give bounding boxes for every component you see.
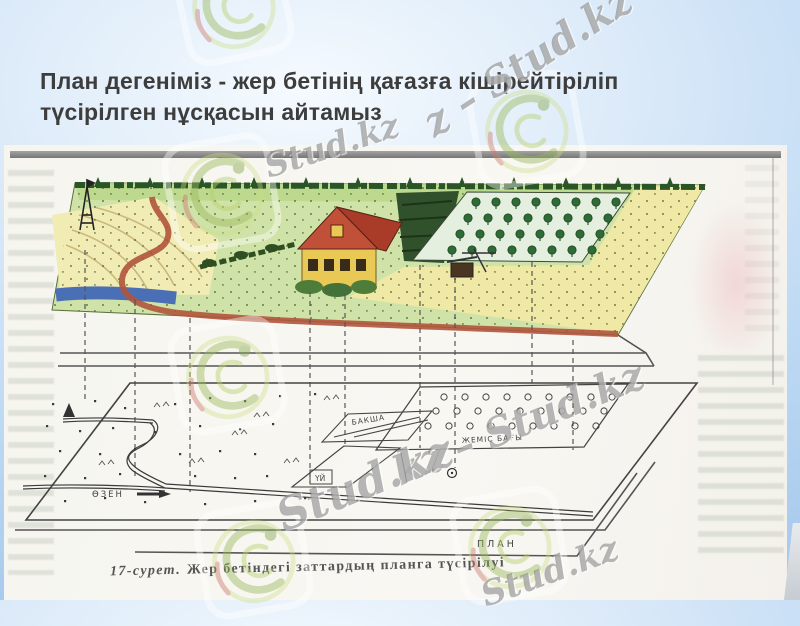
horizon-forest — [75, 177, 705, 187]
plan-house-symbol: ҮЙ — [292, 446, 400, 487]
page-title: План дегеніміз - жер бетінің қағазға кіш… — [40, 66, 770, 128]
sheet-edges — [15, 335, 655, 556]
river — [56, 293, 176, 298]
title-line-1: План дегеніміз - жер бетінің қағазға кіш… — [40, 66, 770, 97]
garden-label-text: БАКША — [351, 413, 386, 427]
plan-garden-symbol: БАКША — [322, 411, 432, 442]
plan-orchard-symbol: ЖЕМІС БАҒЫ — [376, 384, 628, 450]
plan-drawing: ӨЗЕН БАКША ҮЙ ЖЕМІС БАҒЫ — [23, 383, 697, 550]
plan-label-text: ПЛАН — [477, 539, 517, 550]
terrain-and-plan-drawing: ӨЗЕН БАКША ҮЙ ЖЕМІС БАҒЫ — [4, 145, 787, 600]
plan-outline — [26, 383, 697, 520]
orchard-label-text: ЖЕМІС БАҒЫ — [462, 433, 523, 445]
stud-kz-logo-watermark — [165, 0, 301, 74]
river-label-text: ӨЗЕН — [92, 490, 124, 500]
plan-river-label: ӨЗЕН — [92, 490, 171, 500]
landscape-scene — [52, 177, 705, 335]
figure-image: ӨЗЕН БАКША ҮЙ ЖЕМІС БАҒЫ — [4, 145, 787, 600]
slide: { "slide": { "title_line1": "План дегені… — [0, 0, 800, 600]
figure-number: 17-сурет. — [110, 563, 181, 580]
house-label-text: ҮЙ — [314, 474, 325, 483]
plan-triangle-symbol — [63, 403, 75, 417]
title-line-2: түсірілген нұсқасын айтамыз — [40, 97, 770, 128]
plan-well-symbol — [448, 469, 457, 478]
